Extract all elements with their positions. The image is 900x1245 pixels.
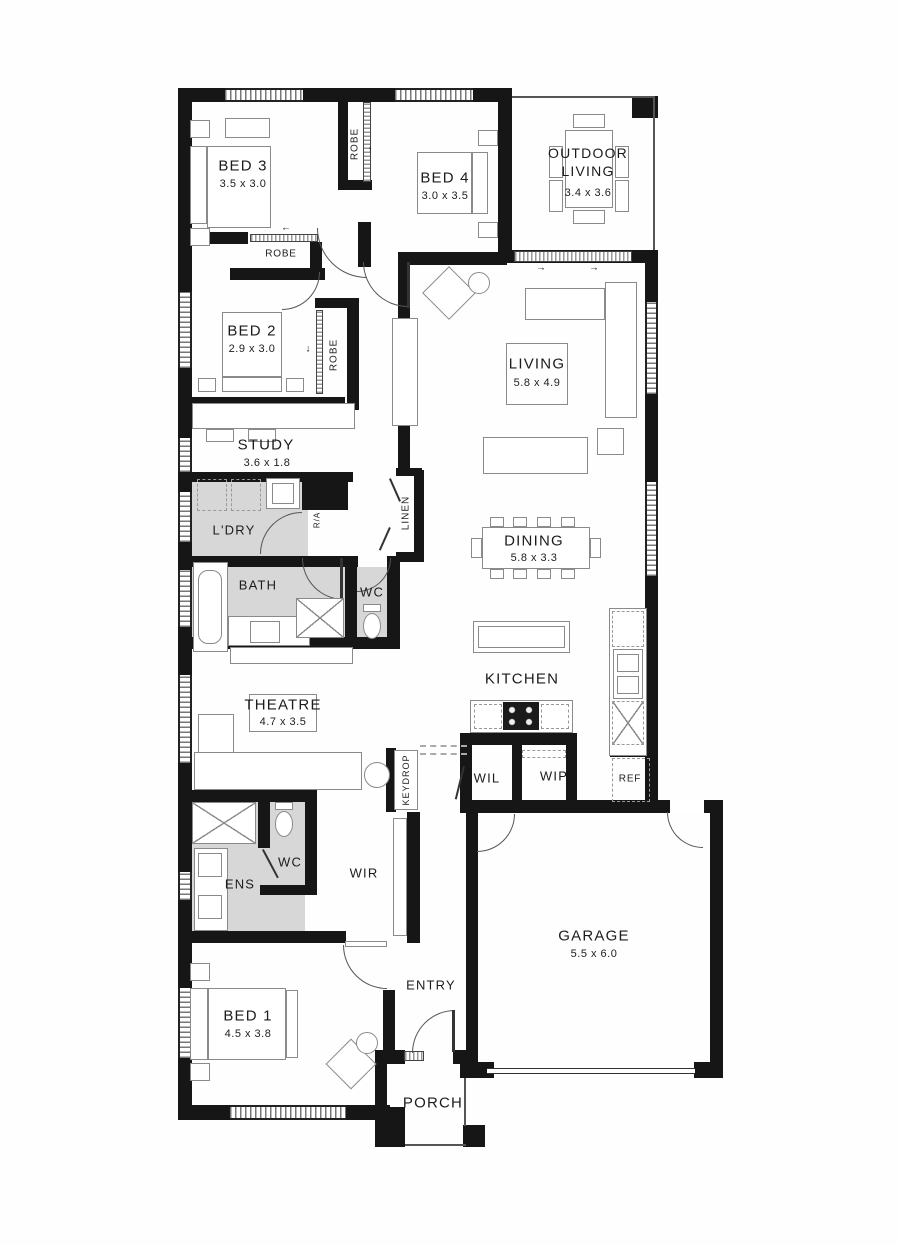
outdoor-edge: [512, 96, 655, 98]
theatre-sofa: [194, 752, 362, 790]
door-leaf: [345, 941, 387, 947]
chair: [537, 517, 551, 527]
window: [230, 1105, 346, 1120]
shower: [296, 598, 344, 638]
nightstand: [198, 378, 216, 392]
slide-arrow-right: →: [589, 263, 599, 274]
room-label-return-air: R/A: [313, 512, 322, 528]
door-arc: [343, 945, 387, 989]
room-label-keydrop: KEYDROP: [401, 754, 411, 805]
wall: [512, 745, 522, 812]
sink-basin: [617, 676, 639, 694]
window: [178, 438, 192, 472]
side-table: [468, 272, 490, 294]
room-label-kitchen: KITCHEN: [485, 671, 559, 688]
wall: [347, 298, 359, 410]
dishwasher: [612, 701, 644, 745]
room-dims-garage: 5.5 x 6.0: [571, 948, 618, 960]
bifold-door: [379, 527, 391, 551]
room-label-laundry: L'DRY: [213, 523, 256, 538]
door-leaf: [452, 1010, 455, 1052]
wall: [375, 1050, 405, 1064]
slide-arrow-up: ↑: [368, 145, 373, 156]
wall: [694, 1062, 723, 1078]
room-label-ref: REF: [619, 774, 641, 785]
bulkhead-line: [420, 745, 467, 755]
room-label-wip: WIP: [540, 769, 568, 784]
chair: [573, 114, 605, 128]
chair: [561, 517, 575, 527]
wardrobe-rail: [393, 818, 407, 936]
room-label-bed3: BED 3: [218, 158, 267, 175]
wall: [462, 733, 574, 745]
vanity-basin: [198, 895, 222, 919]
nightstand: [190, 1063, 210, 1081]
study-desk: [192, 403, 355, 429]
bed-foot: [286, 990, 298, 1058]
room-dims-bed1: 4.5 x 3.8: [225, 1028, 272, 1040]
room-label-wil: WIL: [474, 771, 501, 786]
room-label-robe-bed2: ROBE: [329, 339, 340, 371]
chair: [590, 538, 601, 558]
bifold-door: [389, 478, 401, 502]
window: [178, 292, 192, 368]
chair: [513, 517, 527, 527]
door-leaf: [407, 262, 410, 308]
armchair: [422, 266, 476, 320]
window: [395, 88, 473, 102]
room-dims-theatre: 4.7 x 3.5: [260, 716, 307, 728]
room-dims-outdoor-living: 3.4 x 3.6: [565, 187, 612, 199]
wall: [338, 100, 348, 185]
chair: [471, 538, 482, 558]
room-dims-study: 3.6 x 1.8: [244, 457, 291, 469]
room-label-living: LIVING: [509, 356, 565, 373]
sink-basin: [617, 654, 639, 672]
room-label-garage: GARAGE: [558, 928, 629, 945]
door-leaf: [340, 558, 343, 598]
outdoor-edge: [653, 96, 655, 254]
wall: [178, 931, 346, 943]
room-label-robe-bed3: ROBE: [350, 128, 361, 160]
wall: [407, 252, 507, 265]
nightstand: [478, 130, 498, 146]
chair: [206, 429, 234, 442]
chair: [573, 210, 605, 224]
bed-pillows: [222, 377, 282, 392]
cooktop: [503, 702, 539, 730]
chair: [513, 569, 527, 579]
porch-edge: [464, 1078, 466, 1126]
sliding-door: [514, 251, 632, 262]
sofa: [605, 282, 637, 418]
wall: [710, 800, 723, 1078]
room-label-wir: WIR: [350, 866, 379, 881]
chair: [561, 569, 575, 579]
bed-pillows: [190, 146, 207, 224]
window: [645, 302, 658, 394]
room-label-bed4: BED 4: [420, 170, 469, 187]
window: [178, 570, 192, 627]
slide-arrow-right: →: [536, 263, 546, 274]
wall: [258, 800, 270, 848]
floor-plan: BED 3 3.5 x 3.0 BED 4 3.0 x 3.5 OUTDOOR …: [0, 0, 900, 1245]
room-dims-bed2: 2.9 x 3.0: [229, 343, 276, 355]
sofa: [483, 437, 588, 474]
wall: [414, 470, 424, 558]
room-label-dining: DINING: [504, 533, 564, 550]
room-label-porch: PORCH: [403, 1095, 463, 1112]
wall: [305, 790, 317, 893]
side-table: [356, 1032, 378, 1054]
room-dims-bed3: 3.5 x 3.0: [220, 178, 267, 190]
room-label-linen: LINEN: [401, 496, 412, 530]
door-arc: [363, 262, 408, 307]
side-table: [364, 762, 390, 788]
nightstand: [190, 963, 210, 981]
chair: [615, 180, 629, 212]
nightstand: [190, 120, 210, 138]
dryer: [231, 479, 261, 511]
wall: [398, 425, 410, 472]
window: [178, 492, 192, 542]
wall: [387, 556, 400, 648]
nightstand: [286, 378, 304, 392]
ottoman: [597, 428, 624, 455]
room-label-outdoor-living: OUTDOOR LIVING: [535, 144, 641, 180]
slide-arrow-down: ↓: [306, 344, 311, 355]
room-label-wc: WC: [360, 585, 384, 600]
door-arc: [477, 814, 515, 852]
garage-door: [487, 1068, 695, 1074]
chair: [537, 569, 551, 579]
cabinet: [541, 704, 569, 729]
room-label-ens: ENS: [225, 877, 255, 892]
sink-basin: [272, 483, 294, 504]
window: [645, 482, 658, 576]
room-label-wc-ens: WC: [278, 855, 302, 870]
sliding-door: [363, 102, 371, 182]
bed-pillows: [472, 152, 488, 214]
room-label-bed1: BED 1: [223, 1008, 272, 1025]
nightstand: [478, 222, 498, 238]
porch-pillar: [463, 1125, 485, 1147]
wall: [407, 812, 420, 943]
room-label-entry: ENTRY: [406, 978, 456, 993]
chair: [490, 569, 504, 579]
porch-edge: [405, 1144, 466, 1146]
sliding-door: [250, 234, 318, 242]
dresser: [225, 118, 270, 138]
laundry-duct: [302, 481, 348, 510]
window: [178, 675, 192, 763]
door-arc: [667, 812, 703, 848]
toilet-bowl: [275, 811, 293, 837]
vanity-basin: [250, 621, 280, 643]
bed-pillows: [190, 988, 208, 1060]
nightstand: [190, 228, 210, 246]
wall: [178, 790, 310, 802]
wall: [178, 232, 248, 244]
wall: [396, 552, 424, 562]
wall: [453, 1050, 469, 1064]
room-dims-bed4: 3.0 x 3.5: [422, 190, 469, 202]
window: [225, 88, 303, 102]
vanity-basin: [198, 853, 222, 877]
toilet-bowl: [363, 613, 381, 639]
room-label-bath: BATH: [239, 578, 278, 593]
sofa: [525, 288, 605, 320]
washing-machine: [197, 479, 227, 511]
room-label-study: STUDY: [238, 437, 295, 454]
pantry-shelf: [522, 750, 566, 758]
chaise: [198, 714, 234, 754]
hall-cabinet: [392, 318, 418, 426]
slide-arrow-left: ←: [281, 223, 291, 234]
sliding-door: [316, 310, 323, 394]
rug: [506, 343, 568, 405]
wall: [345, 556, 357, 648]
window: [178, 872, 192, 900]
room-label-theatre: THEATRE: [244, 697, 321, 714]
cabinet: [612, 611, 644, 647]
wall: [498, 88, 512, 263]
room-label-bed2: BED 2: [227, 323, 276, 340]
door-arc: [412, 1010, 455, 1053]
room-dims-living: 5.8 x 4.9: [514, 377, 561, 389]
toilet-tank: [363, 604, 381, 612]
room-dims-dining: 5.8 x 3.3: [511, 552, 558, 564]
kitchen-island-top: [478, 626, 565, 648]
bathtub-inner: [198, 570, 222, 644]
chair: [549, 180, 563, 212]
tv-cabinet: [230, 647, 353, 664]
cabinet: [474, 704, 502, 729]
wall: [260, 885, 317, 895]
chair: [490, 517, 504, 527]
wall: [383, 990, 395, 1057]
porch-pillar: [375, 1107, 405, 1147]
room-label-robe-hall: ROBE: [265, 249, 297, 260]
toilet-tank: [275, 802, 293, 810]
shower: [192, 802, 256, 844]
